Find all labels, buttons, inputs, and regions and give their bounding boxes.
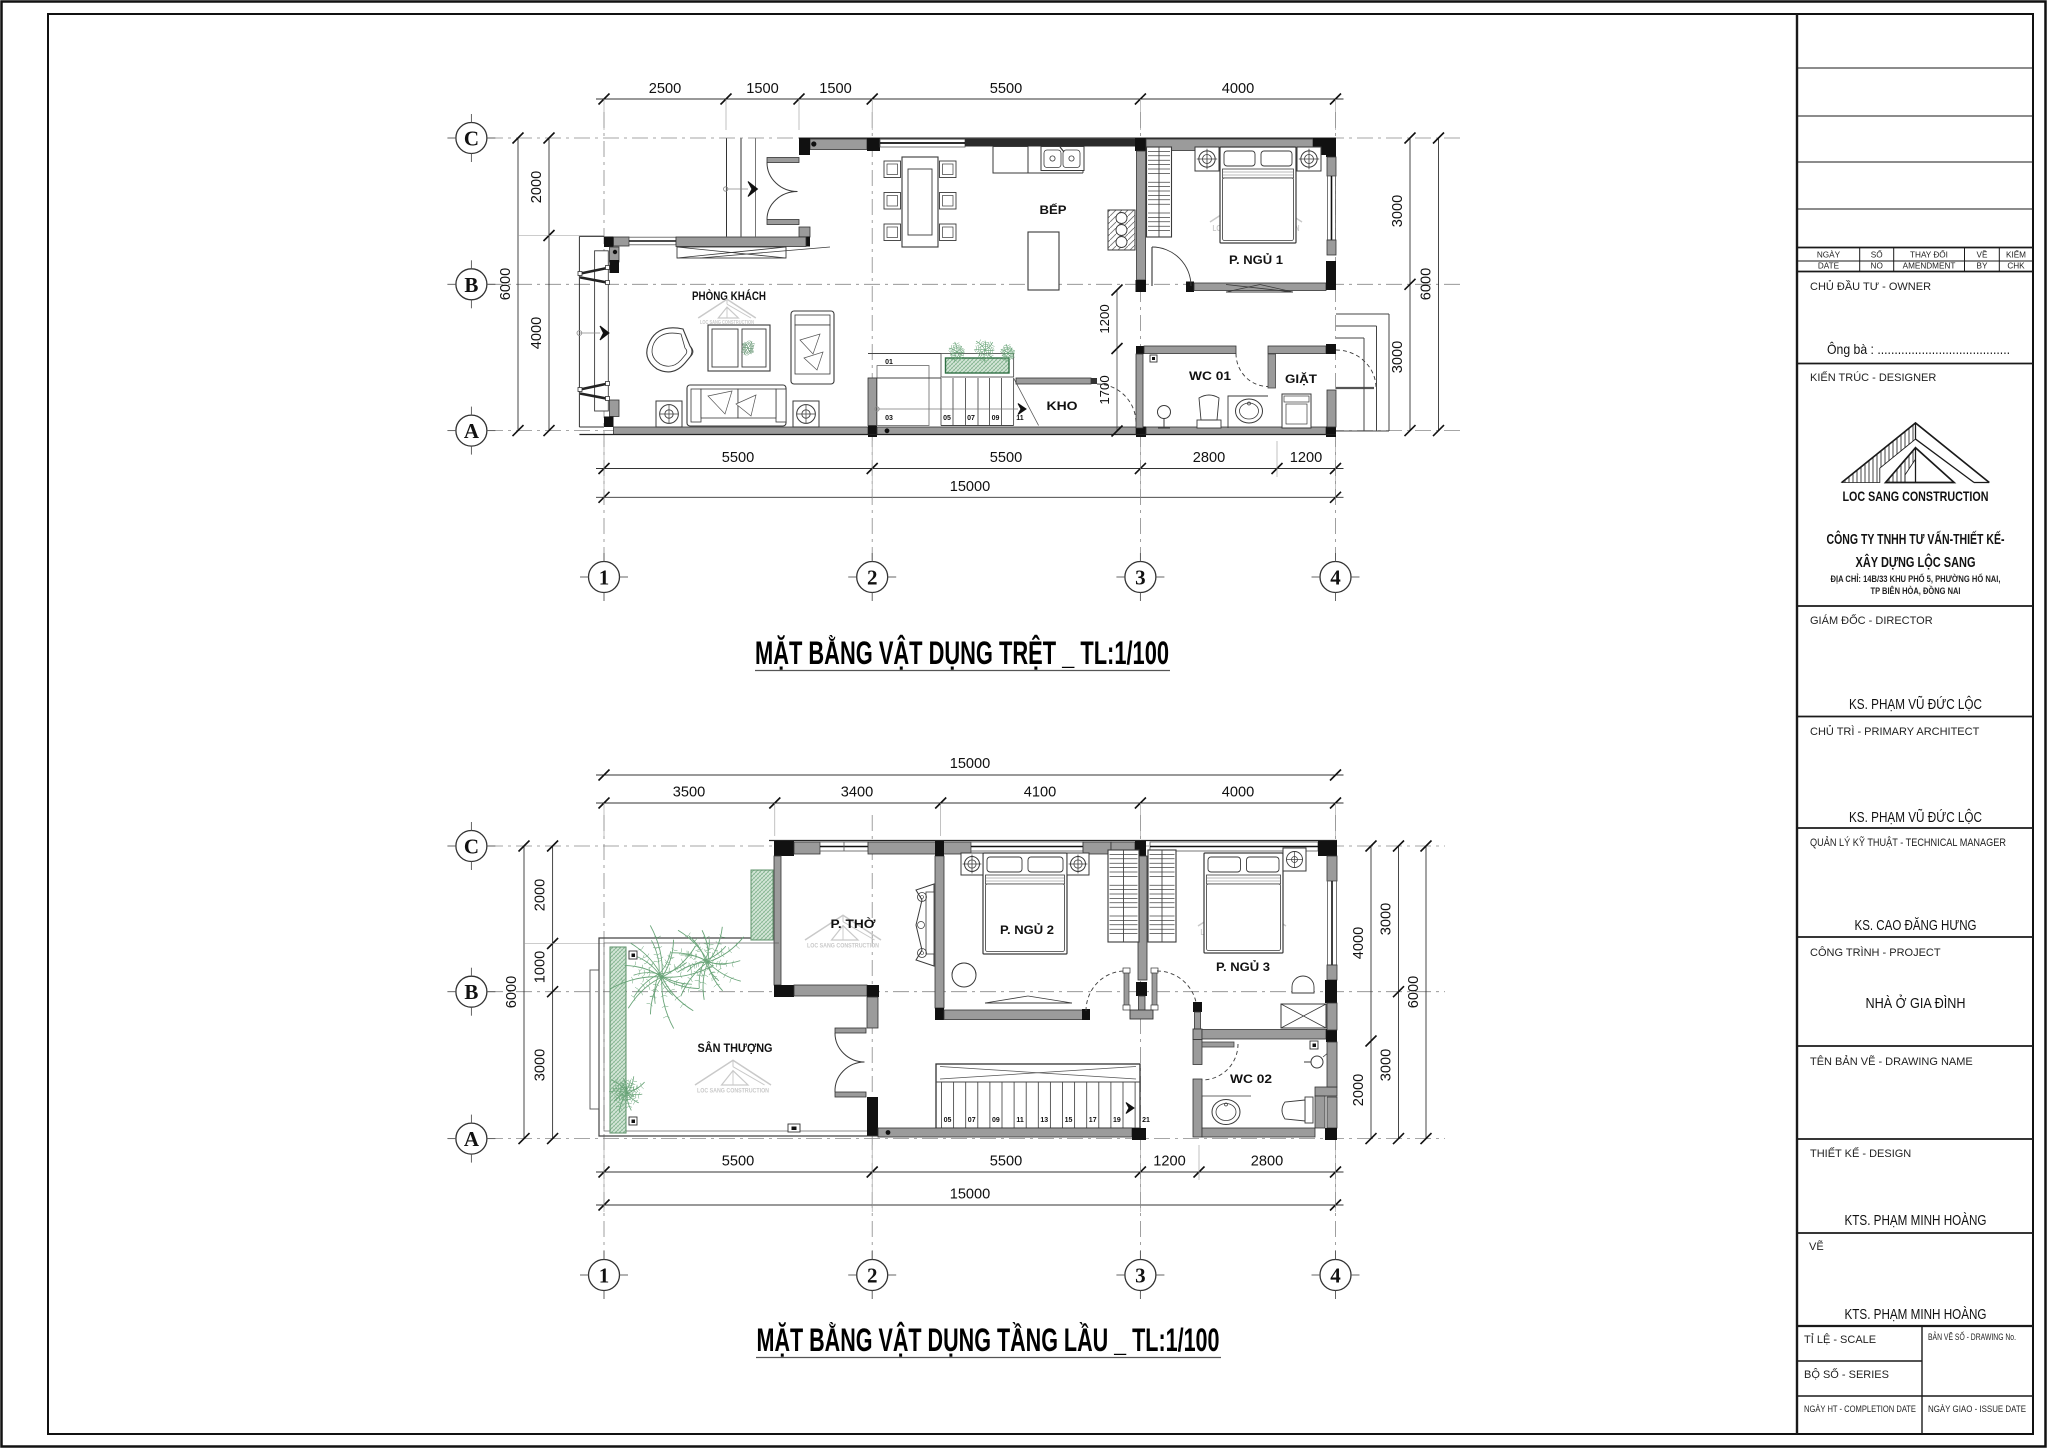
svg-text:11: 11 [1016,1117,1024,1124]
svg-text:3: 3 [1135,1264,1146,1288]
svg-text:21: 21 [1142,1117,1150,1124]
svg-text:2800: 2800 [1251,1154,1283,1170]
svg-text:4000: 4000 [1222,81,1254,97]
svg-text:1200: 1200 [1097,304,1112,333]
svg-text:3000: 3000 [1390,195,1406,227]
svg-text:BY: BY [1977,262,1988,271]
svg-text:6000: 6000 [1406,976,1422,1008]
svg-text:WC 02: WC 02 [1230,1072,1272,1086]
svg-text:GIẶT: GIẶT [1285,371,1318,386]
svg-text:3000: 3000 [1379,903,1395,935]
svg-text:5500: 5500 [990,81,1022,97]
svg-text:VẼ: VẼ [1809,1240,1824,1253]
svg-text:WC 01: WC 01 [1189,369,1231,383]
svg-text:6000: 6000 [1419,268,1435,300]
svg-text:4000: 4000 [1351,927,1367,959]
svg-text:4000: 4000 [1222,785,1254,801]
svg-text:P. NGỦ 3: P. NGỦ 3 [1216,959,1270,974]
svg-text:2000: 2000 [529,171,545,203]
svg-text:THAY ĐỔI: THAY ĐỔI [1910,249,1948,260]
svg-text:KIẾN TRÚC - DESIGNER: KIẾN TRÚC - DESIGNER [1810,371,1936,384]
svg-text:4000: 4000 [529,317,545,349]
svg-text:DATE: DATE [1818,262,1840,271]
svg-text:5500: 5500 [990,1154,1022,1170]
svg-text:CHỦ ĐẦU TƯ - OWNER: CHỦ ĐẦU TƯ - OWNER [1810,280,1931,293]
svg-text:15000: 15000 [950,756,991,772]
svg-text:CÔNG TRÌNH - PROJECT: CÔNG TRÌNH - PROJECT [1810,946,1941,959]
svg-text:2: 2 [867,566,878,590]
svg-text:B: B [464,273,478,297]
svg-text:19: 19 [1113,1117,1121,1124]
svg-text:KHO: KHO [1047,399,1078,413]
svg-text:11: 11 [1016,415,1024,422]
svg-text:05: 05 [944,1117,952,1124]
svg-text:1700: 1700 [1097,375,1112,404]
svg-text:VỀ: VỀ [1977,250,1988,260]
svg-text:NO: NO [1871,262,1883,271]
svg-text:BỘ SỐ - SERIES: BỘ SỐ - SERIES [1804,1367,1889,1381]
svg-text:P. NGỦ 1: P. NGỦ 1 [1229,252,1283,267]
svg-text:6000: 6000 [504,976,520,1008]
svg-text:KS. CAO ĐĂNG HƯNG: KS. CAO ĐĂNG HƯNG [1855,917,1977,934]
svg-text:A: A [464,1127,480,1151]
svg-text:ĐỊA CHỈ: 14B/33 KHU PHỐ 5, PHƯ: ĐỊA CHỈ: 14B/33 KHU PHỐ 5, PHƯỜNG HỐ NAI… [1831,573,2001,584]
svg-text:SÂN THƯỢNG: SÂN THƯỢNG [698,1040,773,1055]
svg-text:BẾP: BẾP [1040,202,1067,217]
svg-text:4: 4 [1330,1264,1341,1288]
svg-text:NGÀY: NGÀY [1817,250,1841,260]
svg-text:6000: 6000 [498,268,514,300]
svg-text:LOC SANG CONSTRUCTION: LOC SANG CONSTRUCTION [807,943,879,950]
svg-text:3000: 3000 [533,1049,549,1081]
svg-text:1500: 1500 [746,81,778,97]
svg-text:2000: 2000 [1351,1074,1367,1106]
svg-text:1200: 1200 [1153,1154,1185,1170]
svg-text:LOC SANG CONSTRUCTION: LOC SANG CONSTRUCTION [1843,488,1989,504]
svg-text:4: 4 [1330,566,1341,590]
svg-text:A: A [464,419,480,443]
svg-text:AMENDMENT: AMENDMENT [1903,262,1956,271]
svg-text:NGÀY GIAO - ISSUE DATE: NGÀY GIAO - ISSUE DATE [1928,1404,2026,1414]
svg-text:1: 1 [599,1264,610,1288]
svg-text:17: 17 [1089,1117,1097,1124]
svg-text:P. NGỦ 2: P. NGỦ 2 [1000,922,1054,937]
svg-text:01: 01 [885,359,893,366]
svg-text:15000: 15000 [950,479,991,495]
svg-text:3000: 3000 [1390,341,1406,373]
svg-text:4100: 4100 [1024,785,1056,801]
svg-text:3000: 3000 [1379,1049,1395,1081]
svg-text:SỐ: SỐ [1871,249,1883,260]
svg-text:CHK: CHK [2007,262,2025,271]
svg-text:KIỂM: KIỂM [2006,249,2026,260]
svg-text:3400: 3400 [841,785,873,801]
svg-text:2500: 2500 [649,81,681,97]
svg-text:KTS. PHẠM MINH HOÀNG: KTS. PHẠM MINH HOÀNG [1845,1212,1987,1229]
svg-text:NHÀ Ở GIA ĐÌNH: NHÀ Ở GIA ĐÌNH [1866,994,1966,1012]
svg-text:TP BIÊN HÒA, ĐỒNG NAI: TP BIÊN HÒA, ĐỒNG NAI [1871,585,1961,596]
svg-text:BẢN VẼ SỐ - DRAWING No.: BẢN VẼ SỐ - DRAWING No. [1928,1331,2016,1342]
svg-text:THIẾT KẾ - DESIGN: THIẾT KẾ - DESIGN [1810,1147,1911,1160]
svg-text:GIÁM ĐỐC - DIRECTOR: GIÁM ĐỐC - DIRECTOR [1810,613,1933,627]
svg-text:C: C [464,127,479,151]
svg-text:KTS. PHẠM MINH HOÀNG: KTS. PHẠM MINH HOÀNG [1845,1306,1987,1323]
svg-text:C: C [464,835,479,859]
svg-text:2800: 2800 [1193,450,1225,466]
svg-text:3: 3 [1135,566,1146,590]
svg-text:1200: 1200 [1290,450,1322,466]
svg-text:LOC SANG CONSTRUCTION: LOC SANG CONSTRUCTION [697,1088,769,1095]
svg-text:09: 09 [992,415,1000,422]
svg-text:2: 2 [867,1264,878,1288]
svg-text:07: 07 [967,415,975,422]
svg-text:1000: 1000 [533,951,549,983]
svg-text:QUẢN LÝ KỸ THUẬT - TECHNICAL M: QUẢN LÝ KỸ THUẬT - TECHNICAL MANAGER [1810,836,2006,849]
svg-text:CÔNG TY TNHH TƯ VẤN-THIẾT KẾ-: CÔNG TY TNHH TƯ VẤN-THIẾT KẾ- [1827,530,2005,548]
svg-text:5500: 5500 [722,450,754,466]
svg-text:03: 03 [885,415,893,422]
svg-text:1: 1 [599,566,610,590]
svg-text:2000: 2000 [533,879,549,911]
svg-text:5500: 5500 [990,450,1022,466]
svg-text:3500: 3500 [673,785,705,801]
svg-text:B: B [464,980,478,1004]
svg-text:15: 15 [1065,1117,1073,1124]
svg-text:TỈ LỆ - SCALE: TỈ LỆ - SCALE [1804,1333,1876,1346]
svg-text:13: 13 [1040,1117,1048,1124]
svg-text:5500: 5500 [722,1154,754,1170]
svg-text:NGÀY HT - COMPLETION DATE: NGÀY HT - COMPLETION DATE [1804,1404,1916,1414]
svg-text:CHỦ TRÌ - PRIMARY ARCHITECT: CHỦ TRÌ - PRIMARY ARCHITECT [1810,725,1980,738]
svg-text:KS. PHẠM VŨ ĐỨC LỘC: KS. PHẠM VŨ ĐỨC LỘC [1849,696,1982,713]
svg-text:05: 05 [943,415,951,422]
svg-text:P. THỜ: P. THỜ [831,916,877,931]
svg-text:1500: 1500 [819,81,851,97]
svg-text:TÊN BẢN VẼ - DRAWING NAME: TÊN BẢN VẼ - DRAWING NAME [1810,1055,1973,1068]
svg-text:Ông bà : .....................: Ông bà : ...............................… [1827,341,2010,357]
svg-text:MẶT BẰNG VẬT DỤNG TẦNG LẦU _ T: MẶT BẰNG VẬT DỤNG TẦNG LẦU _ TL:1/100 [757,1322,1220,1358]
svg-text:09: 09 [992,1117,1000,1124]
svg-text:KS. PHẠM VŨ ĐỨC LỘC: KS. PHẠM VŨ ĐỨC LỘC [1849,809,1982,826]
svg-text:MẶT BẰNG VẬT DỤNG TRỆT _ TL:1/: MẶT BẰNG VẬT DỤNG TRỆT _ TL:1/100 [755,635,1169,671]
svg-text:XÂY DỰNG LỘC SANG: XÂY DỰNG LỘC SANG [1856,553,1976,571]
svg-text:15000: 15000 [950,1187,991,1203]
svg-text:07: 07 [968,1117,976,1124]
